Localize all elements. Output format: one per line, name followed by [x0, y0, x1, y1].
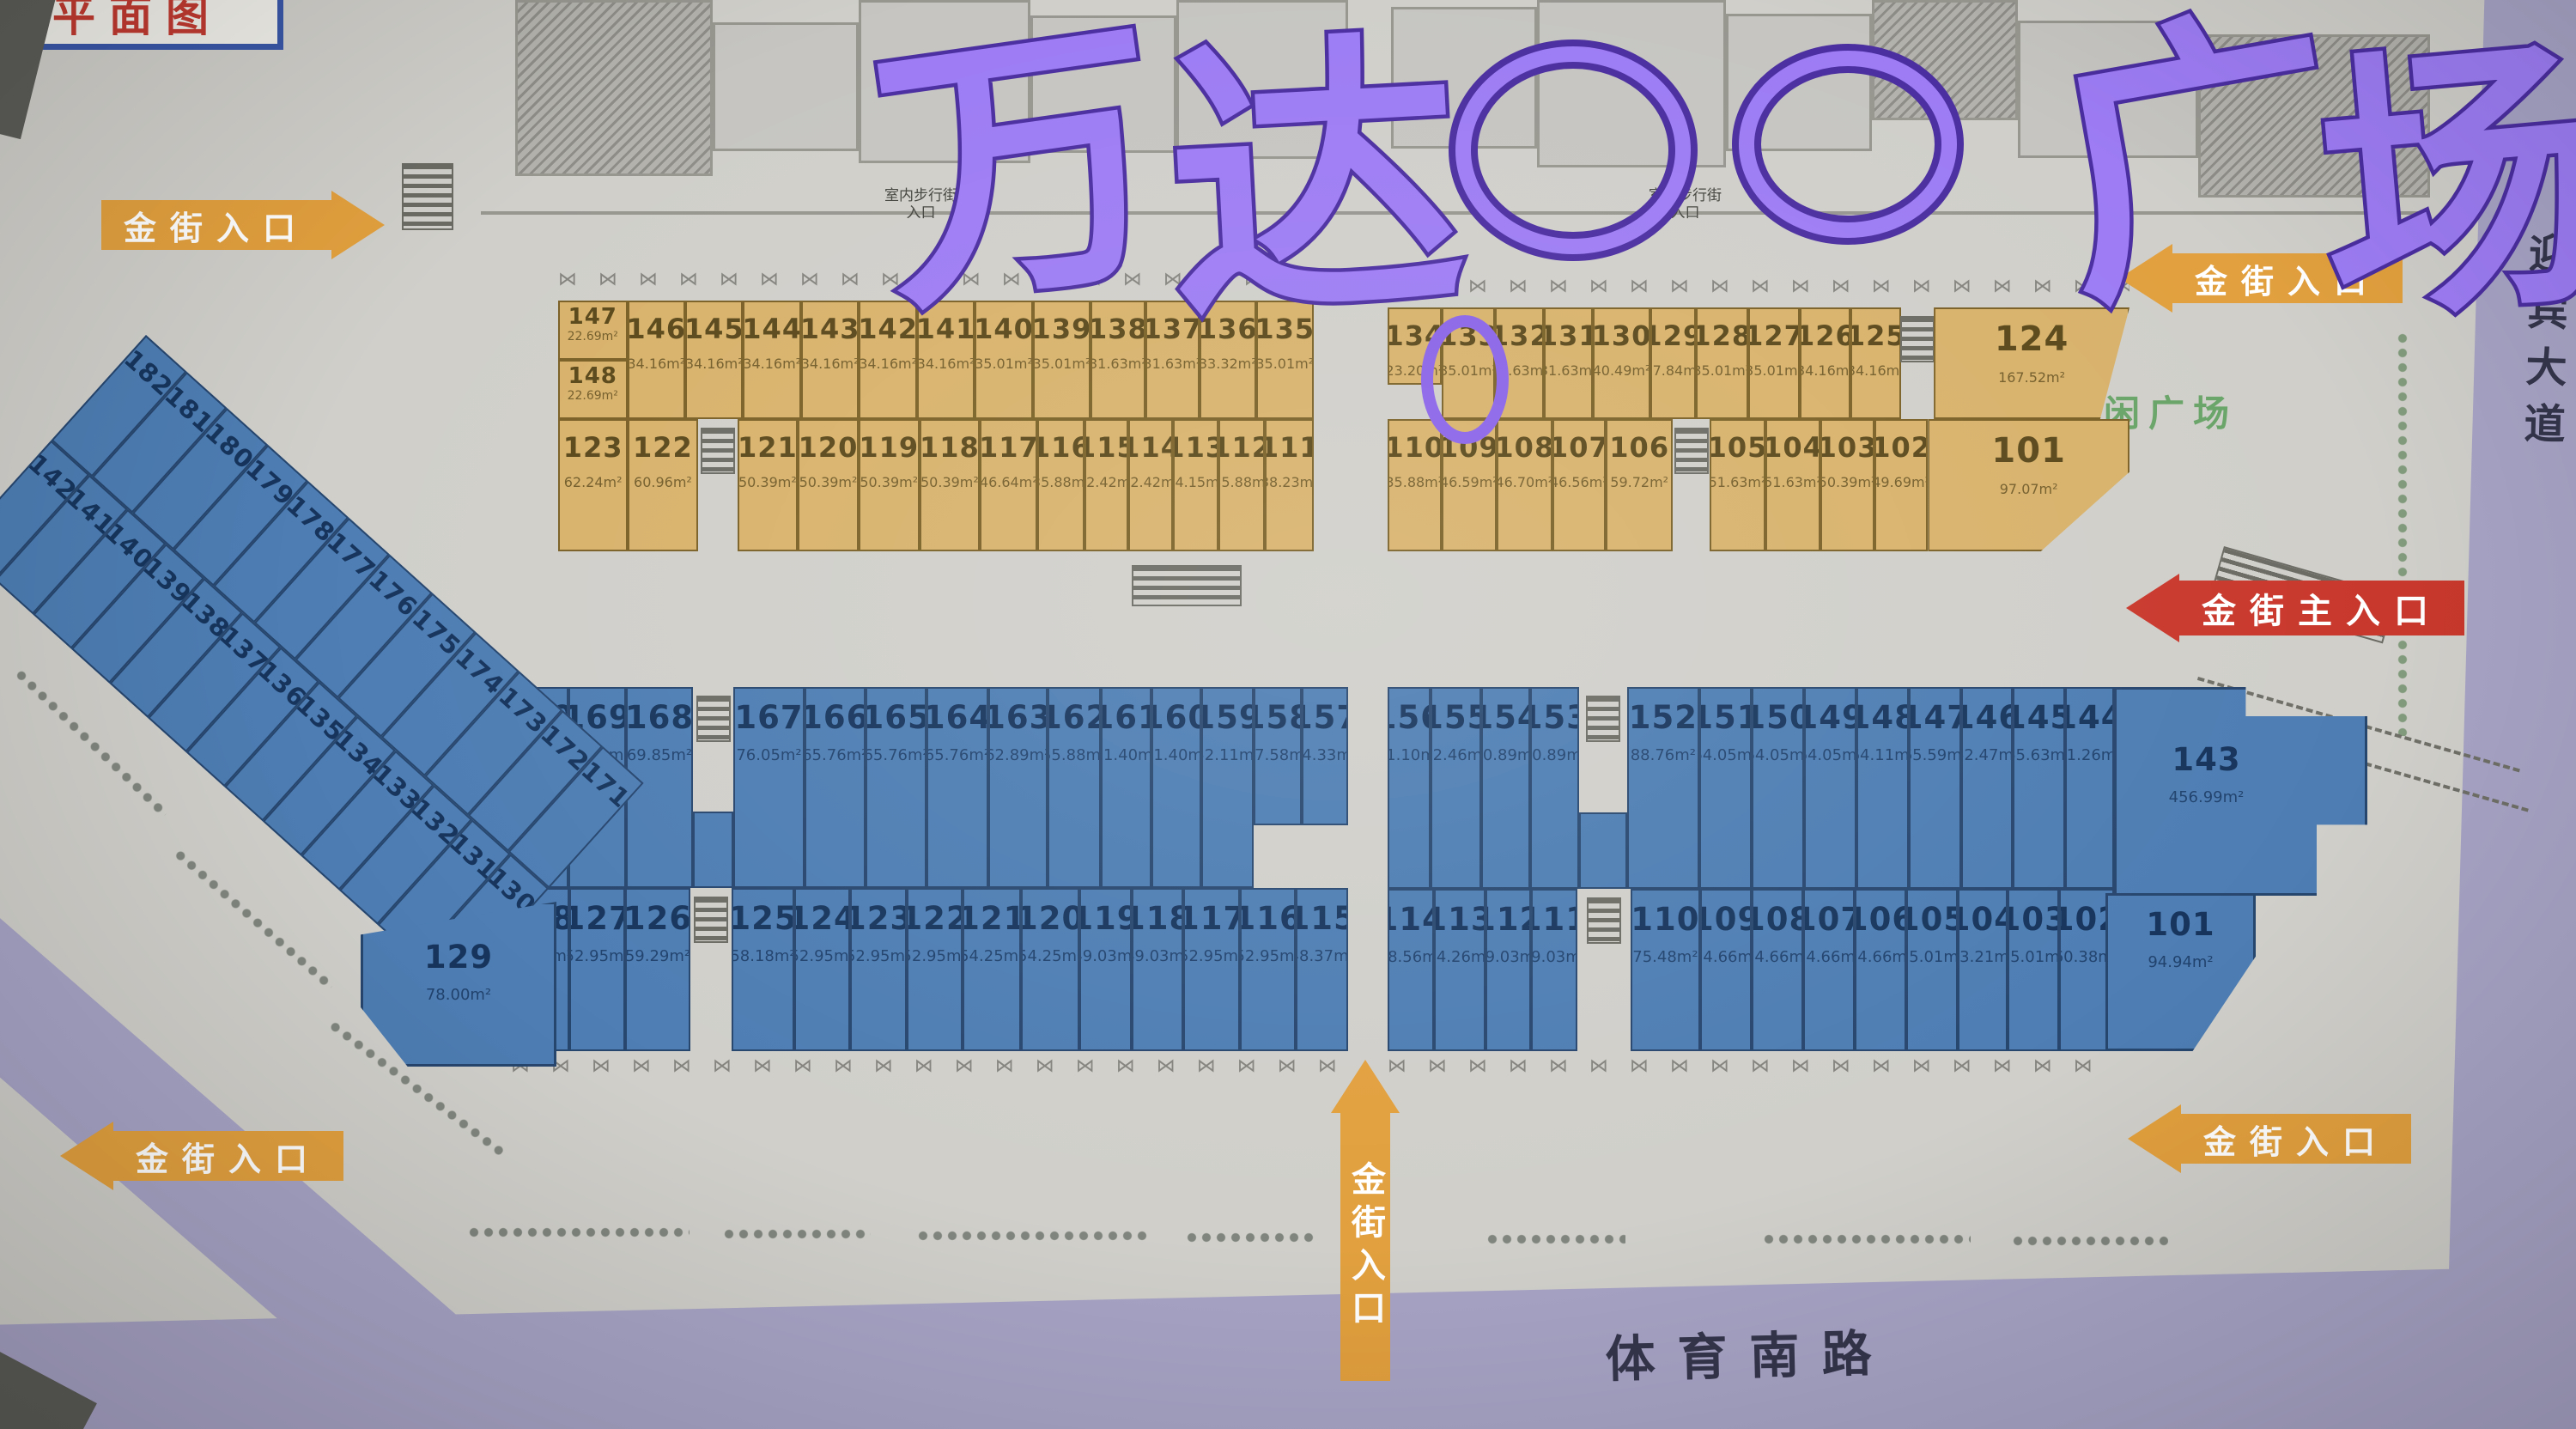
arrow-head-icon [2128, 1104, 2181, 1173]
shop-fill: 13040.49m² [1593, 307, 1649, 419]
shop-area: 50.39m² [920, 474, 979, 490]
entrance-arrow-label: 金街入口 [2181, 1114, 2411, 1164]
shop-number: 134 [1388, 319, 1442, 352]
shop-unit-146: 14634.16m² [628, 301, 685, 419]
shop-area: 34.16m² [917, 356, 975, 372]
shop-unit-167: 16776.05m² [733, 687, 804, 888]
shop-fill: 11448.56m² [1388, 889, 1434, 1051]
shop-unit-141: 14134.16m² [917, 301, 975, 419]
shop-fill: 13131.63m² [1544, 307, 1593, 419]
shop-unit-150: 15064.05m² [1752, 687, 1804, 889]
shop-area: 51.63m² [1765, 474, 1821, 490]
shop-fill: 10551.63m² [1710, 419, 1765, 551]
shop-number: 146 [628, 313, 685, 345]
shop-area: 34.15m² [1173, 474, 1218, 490]
shop-number: 120 [1021, 900, 1079, 937]
shop-number: 109 [1442, 431, 1498, 464]
shop-fill: 11149.03m² [1531, 889, 1577, 1051]
shop-number: 162 [1048, 699, 1102, 736]
shop-number: 136 [1200, 313, 1255, 345]
shop-number: 101 [2146, 906, 2215, 943]
shop-unit-158: 15837.58m² [1254, 687, 1302, 888]
shop-fill: 12150.39m² [738, 419, 799, 551]
shop-fill: 10197.07m² [1928, 419, 2129, 551]
shop-unit-102: 10249.69m² [1874, 419, 1929, 551]
shop-fill: 16565.76m² [866, 687, 927, 888]
shop-area: 38.23m² [1265, 474, 1314, 490]
shop-fill: 11354.26m² [1434, 889, 1485, 1051]
mall-building [515, 0, 713, 176]
shop-number: 148 [568, 363, 617, 389]
shop-area: 22.69m² [568, 389, 618, 403]
shop-fill: 11746.64m² [980, 419, 1037, 551]
shop-number: 113 [1434, 901, 1485, 938]
shop-area: 51.40m² [1151, 746, 1201, 764]
shop-unit-161: 16151.40m² [1101, 687, 1151, 888]
door-glyph-row: ⋈ ⋈ ⋈ ⋈ ⋈ ⋈ ⋈ ⋈ ⋈ ⋈ ⋈ ⋈ ⋈ ⋈ ⋈ ⋈ ⋈ ⋈ ⋈ ⋈ … [511, 1053, 1348, 1080]
shop-area: 33.32m² [1200, 356, 1255, 372]
shop-unit-123: 12352.95m² [850, 888, 906, 1051]
shop-number: 105 [1906, 901, 1958, 938]
shop-area: 22.69m² [568, 330, 618, 344]
shop-area: 49.03m² [1079, 947, 1132, 965]
shop-number: 108 [1752, 901, 1803, 938]
stairs-icon [701, 428, 735, 474]
shop-fill: 14461.26m² [2065, 687, 2114, 889]
shop-unit-109: 10954.66m² [1700, 889, 1752, 1051]
shop-unit-131: 13131.63m² [1544, 307, 1593, 419]
shop-number: 122 [633, 431, 693, 464]
shop-unit-104: 10451.63m² [1765, 419, 1821, 551]
shop-number: 127 [569, 900, 625, 937]
shop-area: 34.33m² [1302, 746, 1348, 764]
shop-number: 149 [1804, 699, 1856, 736]
shop-unit-144: 14461.26m² [2065, 687, 2114, 889]
shop-area: 51.10m² [1388, 746, 1431, 764]
shop-fill: 13633.32m² [1200, 301, 1255, 419]
arrow-head-icon [2126, 574, 2179, 642]
shop-unit-114: 11448.56m² [1388, 889, 1434, 1051]
shop-fill: 10555.01m² [1906, 889, 1958, 1051]
shop-fill: 15837.58m² [1254, 687, 1302, 825]
shop-number: 137 [1145, 313, 1200, 345]
shop-fill: 12534.16m² [1850, 307, 1901, 419]
shop-fill: 14634.16m² [628, 301, 685, 419]
shop-area: 64.05m² [1752, 746, 1804, 764]
shop-area: 35.01m² [1033, 356, 1091, 372]
shop-row: 13423.20m²13335.01m²13231.63m²13131.63m²… [1388, 307, 2129, 419]
shop-unit-111: 11149.03m² [1531, 889, 1577, 1051]
shop-fill: 15164.05m² [1699, 687, 1752, 889]
shop-fill: 11635.88m² [1037, 419, 1084, 551]
shop-area: 35.01m² [1442, 362, 1496, 379]
mall-building [1726, 14, 1872, 151]
shop-area: 34.16m² [743, 356, 800, 372]
shop-unit-156: 15651.10m² [1388, 687, 1431, 889]
shop-fill: 14864.11m² [1856, 687, 1909, 889]
shop-unit-148: 14864.11m² [1856, 687, 1909, 889]
stairs-icon [1674, 428, 1709, 474]
shop-fill: 14765.59m² [1909, 687, 1961, 889]
shop-fill: 12634.16m² [1800, 307, 1850, 419]
shop-fill: 10954.66m² [1700, 889, 1752, 1051]
shop-number: 102 [1874, 431, 1929, 464]
shop-area: 49.03m² [1485, 948, 1532, 966]
shop-unit-135: 13535.01m² [1256, 301, 1314, 419]
shop-area: 55.01m² [2008, 948, 2059, 966]
shop-number: 118 [1132, 900, 1184, 937]
shop-unit-125: 12558.18m² [732, 888, 794, 1051]
shop-unit-113: 11334.15m² [1173, 419, 1218, 551]
arrow-head-icon [2119, 244, 2172, 313]
shop-fill: 10453.21m² [1958, 889, 2008, 1051]
shop-area: 35.01m² [1256, 356, 1314, 372]
shop-unit-120: 12054.25m² [1021, 888, 1079, 1051]
shop-number: 122 [907, 900, 963, 937]
shop-area: 48.37m² [1296, 947, 1348, 965]
shop-unit-103: 10350.39m² [1820, 419, 1874, 551]
shop-area: 52.11m² [1201, 746, 1254, 764]
shop-number: 101 [1991, 431, 2066, 471]
shop-area: 88.76m² [1631, 746, 1696, 764]
shop-unit-123: 12362.24m² [558, 419, 628, 551]
stairs-icon [694, 897, 728, 943]
shop-unit-120: 12050.39m² [798, 419, 859, 551]
entrance-arrow-label: 金街入口 [113, 1131, 343, 1181]
shop-unit-118: 11849.03m² [1132, 888, 1184, 1051]
shop-unit-115: 11532.42m² [1084, 419, 1128, 551]
shop-number: 126 [1800, 319, 1850, 352]
shop-unit-107: 10746.56m² [1552, 419, 1607, 551]
shop-fill: 13935.01m² [1033, 301, 1091, 419]
shop-area: 52.95m² [794, 947, 850, 965]
shop-fill: 16255.88m² [1048, 687, 1102, 888]
shop-area: 65.76m² [927, 746, 987, 764]
shop-number: 116 [1240, 900, 1296, 937]
shop-fill: 10355.01m² [2008, 889, 2059, 1051]
shop-fill: 16051.40m² [1151, 687, 1201, 888]
shop-number: 164 [927, 699, 987, 736]
shop-unit-148: 14822.69m² [558, 360, 628, 419]
mall-building [713, 22, 859, 151]
shop-number: 132 [1495, 319, 1544, 352]
shop-fill: 12352.95m² [850, 888, 906, 1051]
shop-number: 165 [866, 699, 927, 736]
shop-area: 34.16m² [628, 356, 685, 372]
mall-building [1176, 0, 1348, 159]
shop-area: 34.16m² [685, 356, 743, 372]
shop-fill: 13731.63m² [1145, 301, 1200, 419]
shop-unit-122: 12260.96m² [628, 419, 697, 551]
shop-fill: 16776.05m² [733, 687, 804, 888]
shop-number: 112 [1485, 901, 1532, 938]
shop-number: 113 [1173, 431, 1218, 464]
shop-number: 142 [859, 313, 916, 345]
mall-building [1872, 0, 2018, 120]
shop-area: 53.21m² [1958, 948, 2008, 966]
shop-unit-145: 14534.16m² [685, 301, 743, 419]
shop-fill: 10659.72m² [1606, 419, 1673, 551]
shop-area: 37.58m² [1254, 746, 1302, 764]
stairs-icon [1586, 696, 1620, 742]
shop-area: 46.70m² [1497, 474, 1552, 490]
shop-number: 124 [794, 900, 850, 937]
shop-number: 121 [738, 431, 798, 464]
shop-fill: 11849.03m² [1132, 888, 1184, 1051]
blue-block-lower-right: 15651.10m²15562.46m²15460.89m²15360.89m²… [1388, 687, 2114, 1051]
floorplan-photo: 体育南路 迎宾大道 室内步行街 入口 室内步行街 入口 14722.69m²14… [0, 0, 2576, 1429]
shop-area: 65.59m² [1909, 746, 1961, 764]
shop-number: 103 [1820, 431, 1874, 464]
shop-fill: 10746.56m² [1552, 419, 1607, 551]
shop-number: 108 [1497, 431, 1552, 464]
shop-unit-124: 124167.52m² [1934, 307, 2129, 419]
shop-area: 35.88m² [1218, 474, 1266, 490]
shop-fill: 14434.16m² [743, 301, 800, 419]
shop-area: 35.01m² [1748, 362, 1801, 379]
shop-area: 62.46m² [1431, 746, 1481, 764]
shop-unit-106: 10654.66m² [1855, 889, 1906, 1051]
shop-fill: 10946.59m² [1442, 419, 1498, 551]
shop-fill: 14534.16m² [685, 301, 743, 419]
shop-unit-151: 15164.05m² [1699, 687, 1752, 889]
shop-area: 54.26m² [1434, 948, 1485, 966]
shop-number: 133 [1442, 319, 1496, 352]
shop-area: 50.39m² [860, 474, 918, 490]
shop-area: 97.07m² [2000, 481, 2058, 497]
shop-number: 118 [920, 431, 980, 464]
shop-fill: 10846.70m² [1497, 419, 1552, 551]
shop-number: 141 [917, 313, 975, 345]
shop-unit-149: 14964.05m² [1804, 687, 1856, 889]
shop-area: 35.88m² [1037, 474, 1084, 490]
shop-area: 51.63m² [1710, 474, 1765, 490]
corridor-gap [690, 888, 732, 1051]
shop-area: 48.56m² [1388, 948, 1434, 966]
shop-unit-155: 15562.46m² [1431, 687, 1481, 889]
corridor-gap [693, 687, 734, 888]
shop-area: 60.96m² [634, 474, 692, 490]
shop-fill: 14035.01m² [975, 301, 1032, 419]
shop-unit-146: 14662.47m² [1961, 687, 2012, 889]
shop-unit-138: 13831.63m² [1091, 301, 1145, 419]
shop-fill: 11949.03m² [1079, 888, 1132, 1051]
shop-fill: 11249.03m² [1485, 889, 1532, 1051]
shop-fill: 13335.01m² [1442, 307, 1496, 419]
shop-number: 110 [1631, 901, 1699, 938]
shop-unit-111: 11138.23m² [1265, 419, 1314, 551]
shop-number: 126 [625, 900, 690, 937]
shop-fill: 12154.25m² [963, 888, 1021, 1051]
shop-area: 31.63m² [1145, 356, 1200, 372]
shop-unit-116: 11652.95m² [1240, 888, 1296, 1051]
shop-area: 34.16m² [1850, 362, 1901, 379]
shop-number: 125 [732, 900, 794, 937]
shop-area: 54.25m² [963, 947, 1021, 965]
shop-unit-105: 10555.01m² [1906, 889, 1958, 1051]
shop-unit-126: 12634.16m² [1800, 307, 1850, 419]
shop-unit-119: 11949.03m² [1079, 888, 1132, 1051]
shop-number: 168 [626, 699, 693, 736]
shop-number: 161 [1101, 699, 1151, 736]
shop-unit-144: 14434.16m² [743, 301, 800, 419]
mall-building [859, 0, 1030, 163]
shop-fill: 12260.96m² [628, 419, 697, 551]
shop-area: 27.84m² [1650, 362, 1696, 379]
shop-area: 23.20m² [1388, 362, 1442, 379]
shop-unit-142: 14234.16m² [859, 301, 916, 419]
shop-number: 114 [1128, 431, 1172, 464]
shop-number: 109 [1700, 901, 1752, 938]
shop-number: 115 [1296, 900, 1348, 937]
shop-unit-128: 12835.01m² [1696, 307, 1748, 419]
shop-number: 143 [801, 313, 859, 345]
shop-number: 106 [1609, 431, 1669, 464]
shop-unit-129: 12927.84m² [1650, 307, 1696, 419]
shop-unit-115: 11548.37m² [1296, 888, 1348, 1051]
stairs-icon [1587, 897, 1621, 944]
shop-area: 35.01m² [1696, 362, 1748, 379]
shop-fill: 16665.76m² [805, 687, 866, 888]
shop-area: 58.18m² [732, 947, 794, 965]
indoor-walk-entrance-label: 室内步行街 入口 [1649, 187, 1722, 222]
shop-number: 127 [1748, 319, 1801, 352]
shop-number: 112 [1218, 431, 1266, 464]
shop-fill: 14334.16m² [801, 301, 859, 419]
mall-building [2018, 21, 2198, 158]
entrance-arrow-bottom-right: 金街入口 [2128, 1104, 2411, 1173]
shop-number: 143 [2172, 741, 2240, 778]
shop-unit-107: 10754.66m² [1803, 889, 1855, 1051]
shop-fill: 124167.52m² [1934, 307, 2129, 419]
shop-fill: 12452.95m² [794, 888, 850, 1051]
shop-area: 54.66m² [1803, 948, 1855, 966]
shop-area: 456.99m² [2169, 788, 2245, 806]
corridor-gap [1579, 687, 1626, 889]
shop-fill: 12659.29m² [625, 888, 690, 1051]
shop-unit-140: 14035.01m² [975, 301, 1032, 419]
shop-area: 61.26m² [2065, 746, 2114, 764]
shop-number: 167 [734, 699, 803, 736]
shop-fill [693, 812, 734, 888]
shop-number: 117 [980, 431, 1037, 464]
shop-fill: 11334.15m² [1173, 419, 1218, 551]
door-glyph-row: ⋈ ⋈ ⋈ ⋈ ⋈ ⋈ ⋈ ⋈ ⋈ ⋈ ⋈ ⋈ ⋈ ⋈ ⋈ ⋈ ⋈ ⋈ ⋈ ⋈ … [1388, 1053, 2114, 1080]
corridor-gap [1577, 889, 1631, 1051]
shop-unit-154: 15460.89m² [1481, 687, 1530, 889]
shop-number: 116 [1037, 431, 1084, 464]
shop-number: 147 [568, 304, 617, 330]
shop-number: 129 [424, 939, 493, 976]
shop-unit-160: 16051.40m² [1151, 687, 1201, 888]
shop-number: 125 [1850, 319, 1901, 352]
shop-unit-147: 14722.69m² [558, 301, 628, 360]
shop-fill: 14964.05m² [1804, 687, 1856, 889]
gold-street-block-upper-left: 14722.69m²14822.69m²14634.16m²14534.16m²… [558, 301, 1314, 551]
shop-area: 76.05m² [736, 746, 801, 764]
shop-unit-103: 10355.01m² [2008, 889, 2059, 1051]
shop-fill: 11075.48m² [1631, 889, 1700, 1051]
shop-unit-112: 11235.88m² [1218, 419, 1266, 551]
shop-number: 156 [1388, 699, 1431, 736]
shop-unit-165: 16565.76m² [866, 687, 927, 888]
shop-fill: 15460.89m² [1481, 687, 1530, 889]
entrance-arrow-label: 金街入口 [2172, 253, 2403, 303]
corridor-gap [698, 419, 738, 551]
shop-number: 144 [2065, 699, 2114, 736]
shop-area: 52.95m² [907, 947, 963, 965]
shop-number: 119 [859, 431, 919, 464]
shop-area: 55.88m² [1048, 746, 1102, 764]
shop-row: 15651.10m²15562.46m²15460.89m²15360.89m²… [1388, 687, 2114, 889]
shop-unit-110: 11075.48m² [1631, 889, 1700, 1051]
shop-fill: 11432.42m² [1128, 419, 1172, 551]
shop-unit-139: 13935.01m² [1033, 301, 1091, 419]
shop-fill: 14134.16m² [917, 301, 975, 419]
door-glyph-row: ⋈ ⋈ ⋈ ⋈ ⋈ ⋈ ⋈ ⋈ ⋈ ⋈ ⋈ ⋈ ⋈ ⋈ ⋈ ⋈ ⋈ ⋈ ⋈ ⋈ … [1388, 273, 2129, 301]
shop-fill: 11950.39m² [859, 419, 920, 551]
main-entrance-arrow-label: 金街主入口 [2179, 581, 2464, 635]
shop-unit-133: 13335.01m² [1442, 307, 1496, 419]
shop-fill: 11548.37m² [1296, 888, 1348, 1051]
shop-area: 31.63m² [1495, 362, 1544, 379]
shop-number: 144 [743, 313, 800, 345]
shop-unit-147: 14765.59m² [1909, 687, 1961, 889]
shop-unit-130: 13040.49m² [1593, 307, 1649, 419]
shop-unit-108: 10846.70m² [1497, 419, 1552, 551]
shop-area: 65.76m² [805, 746, 866, 764]
shop-unit-134: 13423.20m² [1388, 307, 1442, 419]
shop-number: 111 [1265, 431, 1314, 464]
shop-area: 35.01m² [975, 356, 1032, 372]
shop-fill: 15064.05m² [1752, 687, 1804, 889]
shop-fill: 12252.95m² [907, 888, 963, 1051]
shop-number: 138 [1091, 313, 1145, 345]
shop-fill: 15288.76m² [1627, 687, 1699, 889]
entrance-arrow-label: 金街入口 [101, 200, 331, 250]
shop-unit-124: 12452.95m² [794, 888, 850, 1051]
shop-area: 49.03m² [1132, 947, 1184, 965]
shop-number: 145 [685, 313, 743, 345]
shop-area: 78.00m² [426, 986, 491, 1004]
shop-unit-157: 15734.33m² [1302, 687, 1348, 888]
shop-fill: 14662.47m² [1961, 687, 2012, 889]
shop-area: 65.76m² [866, 746, 927, 764]
mall-building [1391, 7, 1537, 149]
shop-unit-stack: 14722.69m²14822.69m² [558, 301, 628, 419]
shop-unit-163: 16362.89m² [988, 687, 1048, 888]
shop-number: 157 [1302, 699, 1348, 736]
shop-unit-122: 12252.95m² [907, 888, 963, 1051]
shop-number: 151 [1699, 699, 1752, 736]
shop-fill: 11532.42m² [1084, 419, 1128, 551]
shop-row: 14722.69m²14822.69m²14634.16m²14534.16m²… [558, 301, 1314, 419]
shop-number: 150 [1752, 699, 1804, 736]
shop-area: 32.42m² [1084, 474, 1128, 490]
entrance-arrow-top-left: 金街入口 [101, 191, 385, 259]
shop-unit-114: 11432.42m² [1128, 419, 1172, 551]
shop-number: 107 [1552, 431, 1607, 464]
shop-fill: 15651.10m² [1388, 687, 1431, 889]
shop-unit-109: 10946.59m² [1442, 419, 1498, 551]
shop-fill: 12054.25m² [1021, 888, 1079, 1051]
shop-area: 46.59m² [1442, 474, 1498, 490]
shop-number: 146 [1961, 699, 2012, 736]
shop-unit-136: 13633.32m² [1200, 301, 1255, 419]
shop-unit-112: 11249.03m² [1485, 889, 1532, 1051]
shop-number: 158 [1254, 699, 1302, 736]
shop-area: 49.69m² [1874, 474, 1929, 490]
